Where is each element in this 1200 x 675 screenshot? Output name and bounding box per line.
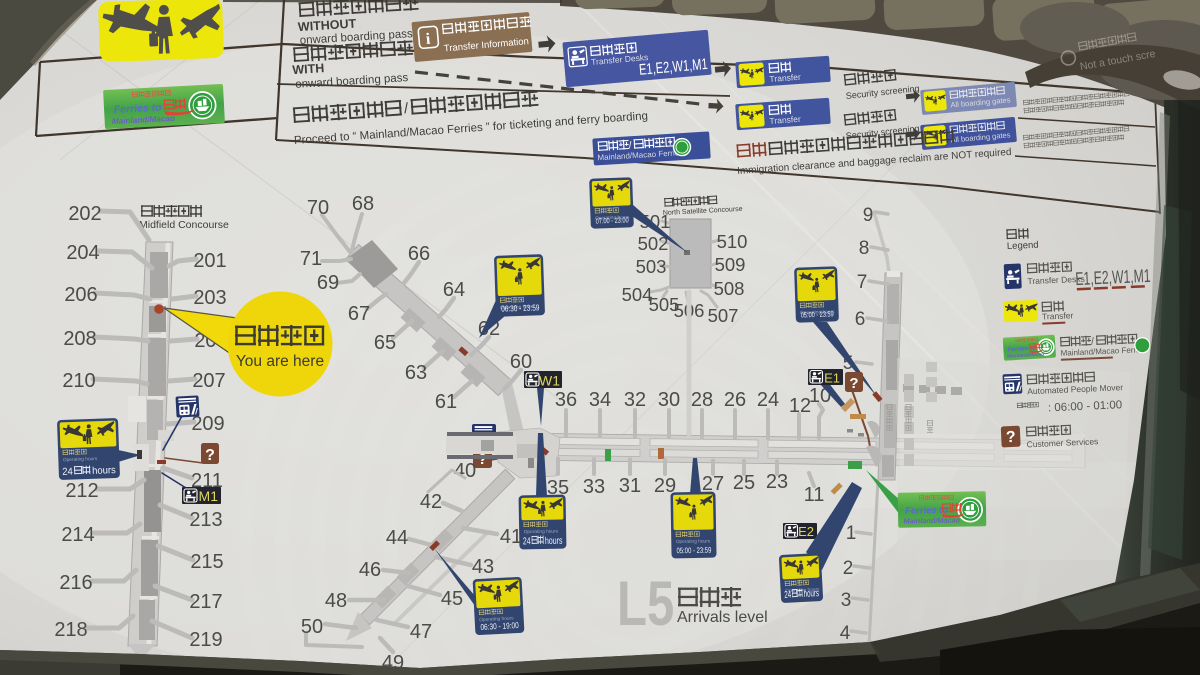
svg-text:61: 61 — [435, 391, 457, 413]
svg-text:30: 30 — [658, 389, 680, 411]
svg-text:WITH: WITH — [292, 61, 325, 77]
svg-text:23: 23 — [766, 471, 788, 493]
svg-text:64: 64 — [443, 279, 465, 301]
svg-text:71: 71 — [300, 248, 322, 270]
svg-text:508: 508 — [714, 278, 745, 299]
svg-text:45: 45 — [441, 588, 463, 610]
svg-text:213: 213 — [189, 509, 222, 531]
svg-text:06:30 - 23:59: 06:30 - 23:59 — [501, 302, 540, 313]
svg-text:?: ? — [849, 375, 858, 392]
svg-text:Arrivals level: Arrivals level — [677, 609, 768, 626]
svg-text:32: 32 — [624, 389, 646, 411]
svg-text:216: 216 — [59, 572, 92, 594]
svg-text:503: 503 — [636, 256, 667, 277]
svg-text:6: 6 — [855, 309, 866, 330]
svg-text:215: 215 — [190, 551, 223, 573]
svg-text:11: 11 — [804, 484, 825, 506]
svg-text:05:00 - 23:59: 05:00 - 23:59 — [801, 311, 834, 320]
svg-text:26: 26 — [724, 389, 746, 411]
svg-text:24: 24 — [523, 535, 531, 547]
svg-text:3: 3 — [841, 590, 852, 611]
svg-text:M1: M1 — [199, 488, 219, 504]
svg-text:27: 27 — [702, 473, 724, 495]
svg-text:207: 207 — [192, 370, 225, 392]
svg-text:217: 217 — [189, 591, 222, 613]
svg-text:70: 70 — [307, 197, 329, 219]
svg-text:7: 7 — [857, 272, 868, 293]
svg-text:05:00 - 23:59: 05:00 - 23:59 — [677, 547, 712, 556]
svg-text:2: 2 — [843, 558, 854, 579]
svg-text:208: 208 — [63, 328, 96, 350]
svg-text:8: 8 — [859, 238, 870, 259]
svg-text:66: 66 — [408, 243, 430, 265]
svg-text:Midfield Concourse: Midfield Concourse — [139, 219, 229, 231]
svg-text:?: ? — [1005, 429, 1016, 446]
svg-text:212: 212 — [65, 480, 98, 502]
svg-text:4: 4 — [840, 623, 851, 644]
svg-text:24: 24 — [757, 389, 779, 411]
svg-text:63: 63 — [405, 362, 427, 384]
svg-text:60: 60 — [510, 351, 532, 373]
svg-text:69: 69 — [317, 272, 339, 294]
svg-text:203: 203 — [193, 287, 226, 309]
svg-text:510: 510 — [717, 231, 748, 252]
svg-text:07.00 - 23:00: 07.00 - 23:00 — [596, 217, 629, 226]
svg-text:202: 202 — [68, 203, 101, 225]
svg-text:24: 24 — [62, 466, 73, 478]
svg-text:hours: hours — [545, 534, 563, 546]
svg-text:36: 36 — [555, 389, 577, 411]
svg-text:65: 65 — [374, 332, 396, 354]
svg-text:28: 28 — [691, 389, 713, 411]
svg-text:46: 46 — [359, 559, 381, 581]
svg-text:12: 12 — [789, 395, 811, 417]
svg-text:W1: W1 — [539, 373, 560, 389]
svg-text:34: 34 — [589, 389, 611, 411]
svg-text:E1: E1 — [824, 371, 840, 386]
svg-text:25: 25 — [733, 472, 755, 494]
svg-text:210: 210 — [62, 370, 95, 392]
svg-text:509: 509 — [715, 254, 746, 275]
svg-text:42: 42 — [420, 491, 442, 513]
svg-text:24: 24 — [784, 588, 792, 600]
svg-text:L5: L5 — [617, 568, 674, 638]
svg-text:47: 47 — [410, 621, 432, 643]
svg-text:201: 201 — [193, 250, 226, 272]
svg-text:44: 44 — [386, 527, 408, 549]
svg-text:06:30 - 19:00: 06:30 - 19:00 — [480, 620, 519, 632]
svg-text:1: 1 — [846, 523, 857, 544]
svg-text:214: 214 — [61, 524, 94, 546]
svg-text:33: 33 — [583, 476, 605, 498]
svg-text:9: 9 — [863, 205, 874, 226]
svg-text:41: 41 — [500, 526, 522, 548]
svg-text:Operating hours: Operating hours — [63, 456, 98, 463]
svg-text:E2: E2 — [798, 524, 814, 539]
svg-text:507: 507 — [708, 305, 739, 326]
svg-text:Transfer: Transfer — [1042, 310, 1074, 321]
svg-text:218: 218 — [54, 619, 87, 641]
svg-text:43: 43 — [472, 556, 494, 578]
svg-text:206: 206 — [64, 284, 97, 306]
svg-text:hours: hours — [92, 465, 116, 477]
svg-text:50: 50 — [301, 616, 323, 638]
svg-text:219: 219 — [189, 629, 222, 651]
svg-text:Mainland/Macao: Mainland/Macao — [903, 515, 960, 525]
svg-text:68: 68 — [352, 193, 374, 215]
svg-text:Legend: Legend — [1007, 240, 1039, 252]
svg-text:hours: hours — [803, 586, 819, 599]
svg-text:You are here: You are here — [236, 353, 324, 370]
svg-text:Operating hours: Operating hours — [676, 538, 711, 545]
svg-text:?: ? — [205, 447, 215, 464]
svg-text:31: 31 — [619, 475, 641, 497]
svg-text:204: 204 — [66, 242, 99, 264]
svg-text:67: 67 — [348, 303, 370, 325]
svg-text:48: 48 — [325, 590, 347, 612]
